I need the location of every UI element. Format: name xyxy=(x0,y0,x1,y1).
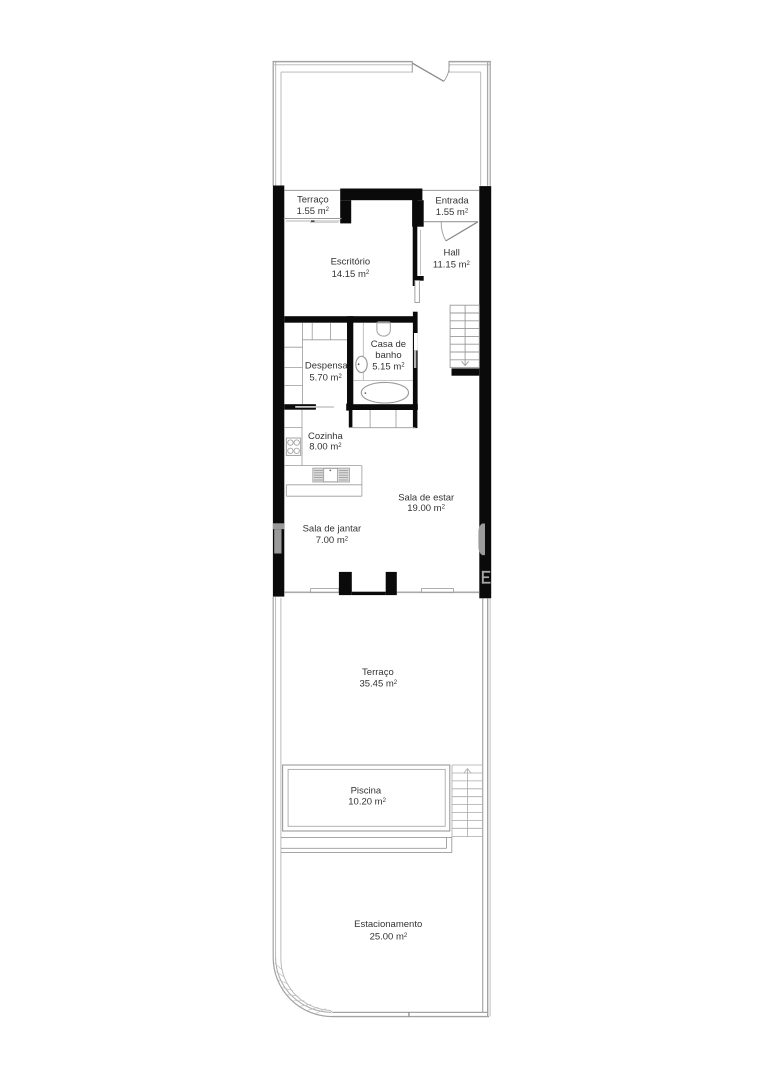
svg-text:25.00 m2: 25.00 m2 xyxy=(370,932,408,943)
svg-text:14.15 m2: 14.15 m2 xyxy=(332,269,370,280)
svg-text:1.55 m2: 1.55 m2 xyxy=(436,207,469,218)
svg-text:Terraço: Terraço xyxy=(297,194,329,205)
svg-text:Escritório: Escritório xyxy=(331,257,371,268)
svg-text:Sala de jantar: Sala de jantar xyxy=(303,524,362,535)
svg-text:Hall: Hall xyxy=(444,248,460,259)
svg-text:Terraço: Terraço xyxy=(362,667,394,678)
svg-text:7.00 m2: 7.00 m2 xyxy=(316,535,349,546)
svg-text:35.45 m2: 35.45 m2 xyxy=(359,678,397,689)
svg-text:Piscina: Piscina xyxy=(351,786,382,797)
svg-text:11.15 m2: 11.15 m2 xyxy=(433,259,471,270)
svg-text:Despensa: Despensa xyxy=(305,361,348,372)
svg-text:Entrada: Entrada xyxy=(435,196,469,207)
svg-text:Cozinha: Cozinha xyxy=(308,431,344,442)
svg-text:8.00 m2: 8.00 m2 xyxy=(309,442,342,453)
svg-text:5.70 m2: 5.70 m2 xyxy=(309,373,342,384)
svg-text:5.15 m2: 5.15 m2 xyxy=(372,361,405,372)
svg-text:Sala de estar: Sala de estar xyxy=(398,492,454,503)
svg-text:10.20 m2: 10.20 m2 xyxy=(348,796,386,807)
svg-text:19.00 m2: 19.00 m2 xyxy=(407,503,445,514)
svg-text:banho: banho xyxy=(375,350,401,361)
svg-text:Casa de: Casa de xyxy=(371,339,406,350)
svg-text:Estacionamento: Estacionamento xyxy=(354,919,422,930)
svg-text:1.55 m2: 1.55 m2 xyxy=(297,206,330,217)
